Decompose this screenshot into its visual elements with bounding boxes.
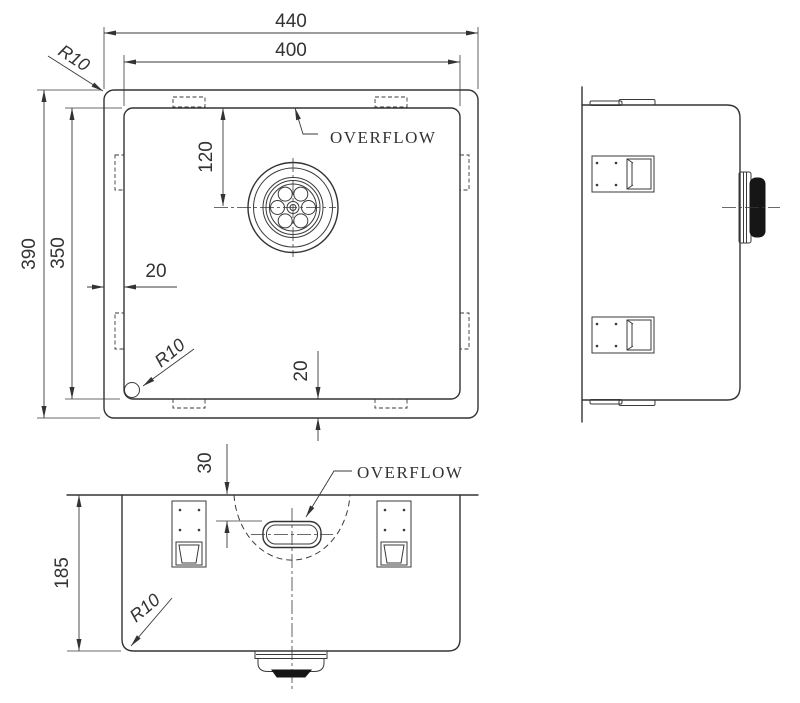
- technical-drawing: 440 400 390 350 120: [0, 0, 800, 703]
- dim-drain-offset: 120: [196, 108, 223, 206]
- dim-overflow-offset-value: 30: [195, 452, 216, 473]
- radius-inner-value: R10: [151, 335, 189, 372]
- front-view-drain-fitting: [255, 651, 327, 677]
- radius-callout-outer: R10: [48, 41, 103, 91]
- top-view: 440 400 390 350 120: [19, 11, 478, 441]
- dim-outer-width-value: 440: [275, 11, 307, 32]
- front-view-bracket-right: [377, 501, 411, 567]
- front-view-body: [122, 495, 460, 651]
- dim-depth-value: 185: [52, 557, 73, 589]
- dim-bottom-wall-gap-value: 20: [291, 360, 312, 381]
- sink-drawing-canvas: 440 400 390 350 120: [0, 0, 800, 703]
- front-view: 30 185 R10 OVERFLOW: [52, 444, 478, 690]
- dim-inner-width-value: 400: [275, 40, 307, 61]
- side-view-overflow-fitting: [722, 172, 780, 243]
- side-view: [582, 87, 780, 422]
- radius-outer-value: R10: [55, 41, 94, 76]
- front-view-bracket-left: [172, 501, 206, 567]
- dim-depth: 185: [52, 495, 121, 651]
- radius-front-value: R10: [126, 590, 164, 627]
- dim-drain-offset-value: 120: [196, 141, 217, 173]
- dim-outer-height-value: 390: [19, 238, 40, 270]
- dim-bottom-wall-gap: 20: [291, 351, 318, 441]
- overflow-label-front: OVERFLOW: [357, 463, 463, 482]
- radius-callout-front: R10: [126, 590, 172, 646]
- dim-inner-height: 350: [48, 108, 122, 399]
- dim-inner-width: 400: [124, 40, 460, 106]
- dim-overflow-offset: 30: [195, 444, 262, 548]
- side-view-lip-tabs: [590, 100, 655, 406]
- drain-strainer: [214, 158, 338, 257]
- overflow-callout-top: OVERFLOW: [295, 108, 436, 147]
- side-view-bracket-lower: [592, 317, 654, 353]
- side-view-body: [582, 105, 740, 400]
- dim-inner-height-value: 350: [48, 237, 69, 269]
- dim-left-wall-gap-value: 20: [145, 261, 166, 282]
- overflow-label-top: OVERFLOW: [330, 128, 436, 147]
- dim-left-wall-gap: 20: [87, 261, 177, 287]
- radius-callout-inner: R10: [125, 335, 195, 398]
- side-view-bracket-upper: [592, 156, 654, 192]
